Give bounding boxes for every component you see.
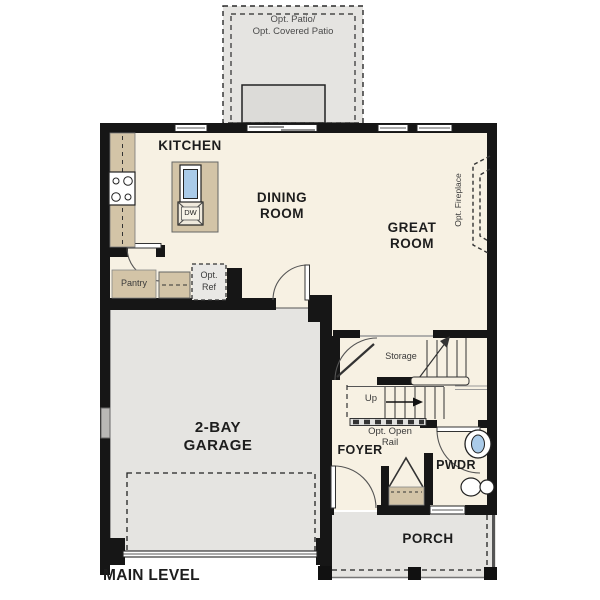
porch-post-left	[318, 566, 332, 580]
garage-floor	[110, 308, 322, 554]
porch-post-middle	[408, 567, 421, 580]
wall-garage-corner-left	[100, 538, 125, 565]
wall-front-b	[377, 505, 430, 515]
pantry-shelving	[112, 270, 156, 298]
wall-right	[487, 123, 497, 515]
wall-ref-stub	[227, 268, 242, 300]
wall-front-c	[465, 505, 497, 515]
porch-post-right	[484, 567, 497, 580]
kitchen-sink-basin	[184, 170, 198, 199]
wall-storage-bottom	[377, 377, 413, 385]
closet-shelf	[389, 487, 424, 505]
stair-landing	[411, 377, 469, 385]
wall-closet-right	[424, 453, 433, 505]
wall-pwdr-top-right	[478, 420, 497, 428]
toilet-bowl	[461, 478, 481, 496]
dishwasher-label-chip	[182, 207, 200, 220]
wall-garage-corner-right	[316, 538, 332, 565]
wall-garage-top	[100, 298, 276, 310]
wall-stair-right	[433, 330, 497, 338]
pwdr-sink-basin	[472, 435, 485, 453]
floor-plan-drawing	[0, 0, 600, 600]
garage-side-window	[101, 408, 110, 438]
wall-pantry-stub	[100, 247, 128, 257]
toilet-tank	[480, 480, 494, 494]
front-door-leaf	[331, 466, 336, 508]
opt-ref-box	[192, 264, 226, 300]
wall-garage-right	[320, 300, 332, 566]
wall-closet-left	[381, 466, 389, 505]
garage-entry-door-leaf	[305, 265, 310, 300]
floor-plan: Opt. Patio/ Opt. Covered Patio KITCHEN D…	[0, 0, 600, 600]
covered-patio-stoop	[242, 85, 325, 123]
